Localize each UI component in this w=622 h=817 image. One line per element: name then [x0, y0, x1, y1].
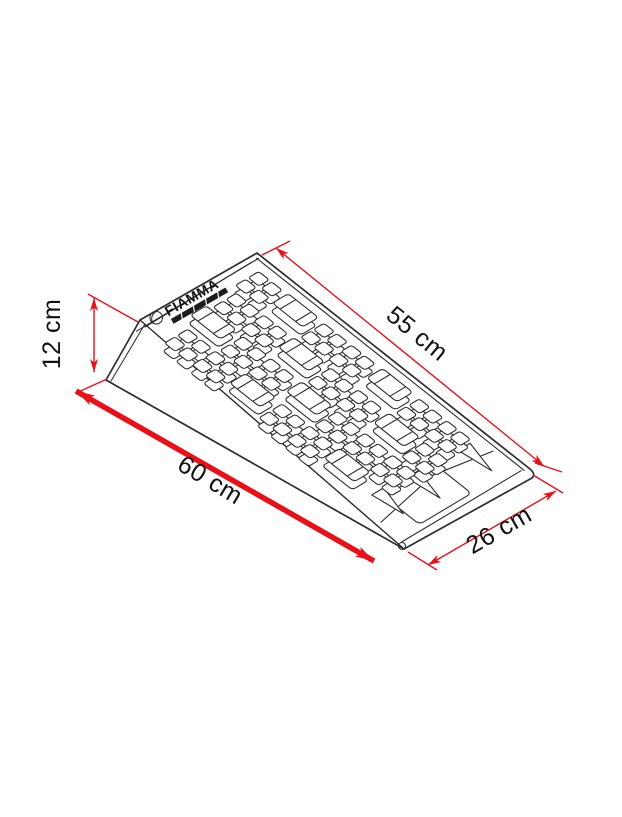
dimension-label-top-length: 55 cm	[381, 301, 453, 367]
ramp-technical-drawing: FIAMMA 55 cm 12 cm 60 cm 26 cm	[0, 0, 622, 817]
extension-tick	[88, 294, 138, 322]
extension-tick	[535, 463, 562, 472]
levelling-ramp-diagram: FIAMMA 55 cm 12 cm 60 cm 26 cm	[0, 0, 622, 817]
dimension-label-height: 12 cm	[38, 299, 66, 370]
dimension-label-base-length: 60 cm	[173, 450, 248, 510]
extension-tick	[408, 552, 437, 570]
extension-tick	[533, 475, 563, 493]
ramp-body: FIAMMA	[106, 253, 534, 550]
